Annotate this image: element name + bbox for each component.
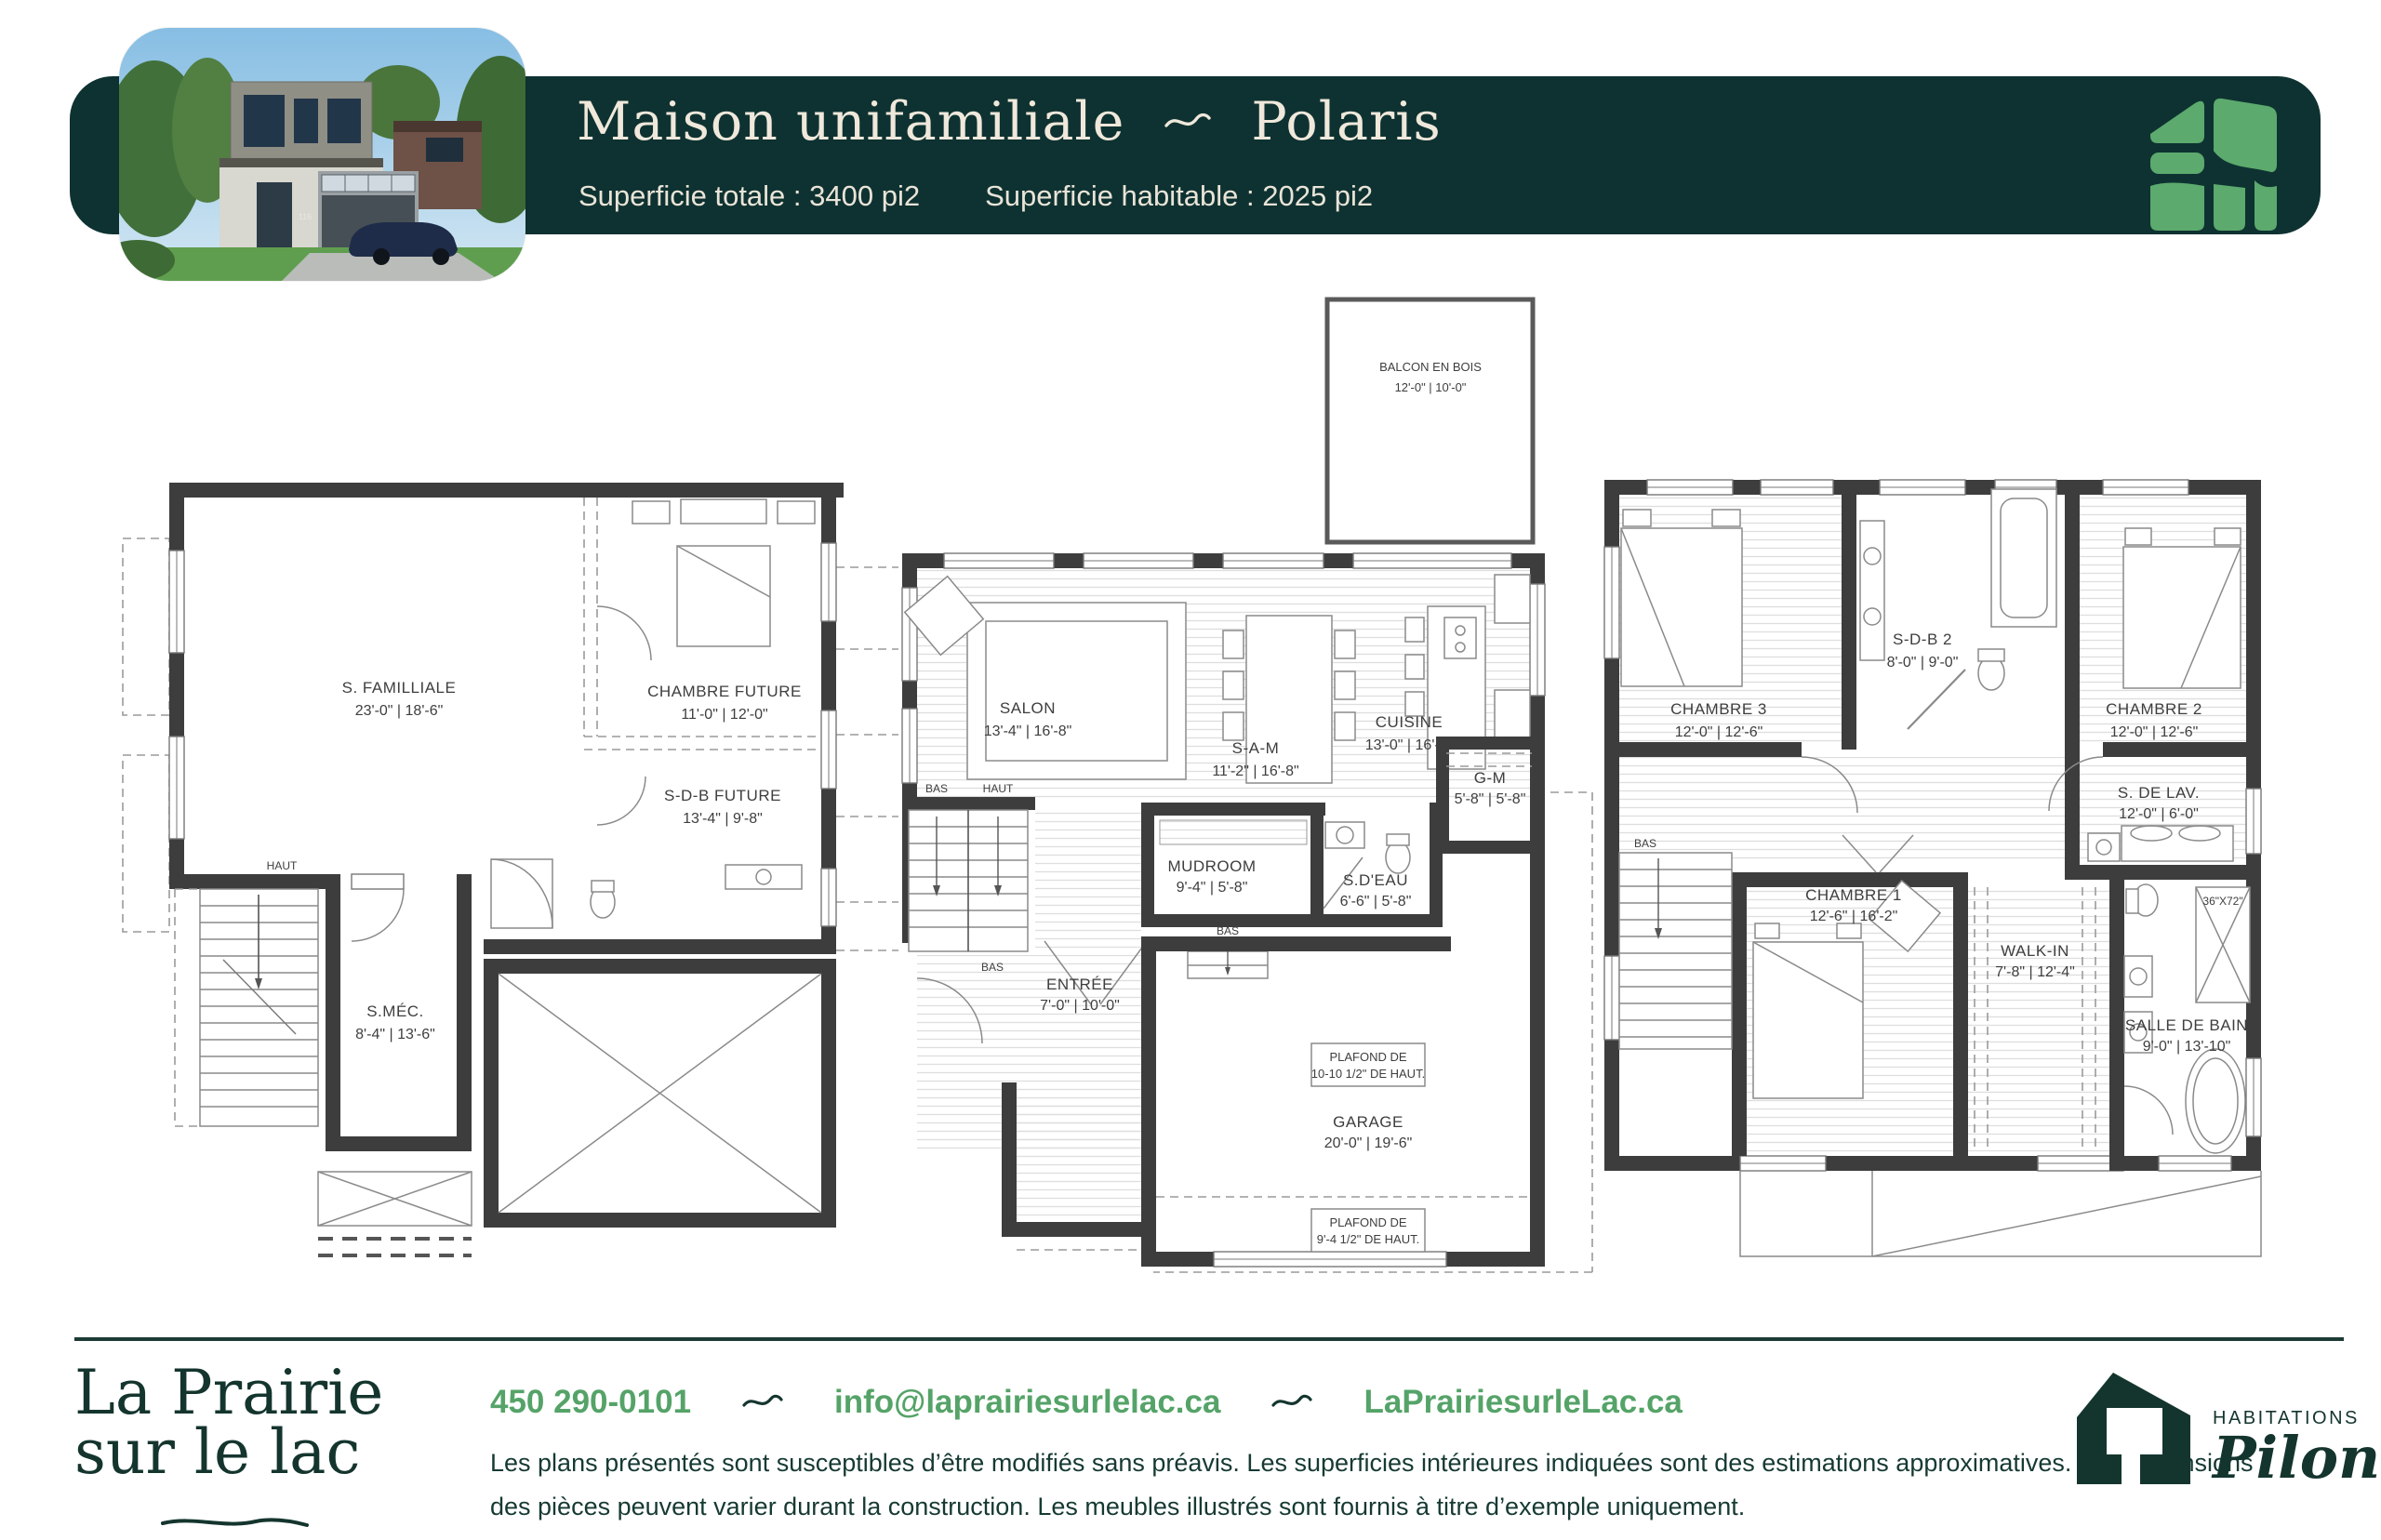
room-label: SALON xyxy=(1000,699,1056,717)
ceiling-note: PLAFOND DE xyxy=(1329,1215,1406,1229)
room-label: CHAMBRE FUTURE xyxy=(647,683,802,700)
room-label: SALLE DE BAIN xyxy=(2125,1016,2248,1034)
stair-label-bas: BAS xyxy=(981,961,1004,974)
room-label: CHAMBRE 3 xyxy=(1670,700,1767,718)
stair-label-haut: HAUT xyxy=(267,859,298,872)
pilon-logo: HABITATIONS Pilon xyxy=(2060,1360,2380,1492)
squiggle-icon xyxy=(1270,1392,1313,1413)
pilon-name: Pilon xyxy=(2213,1424,2380,1492)
title-right: Polaris xyxy=(1251,91,1441,153)
brand-line2: sur le lac xyxy=(74,1423,383,1482)
disclaimer-line1: Les plans présentés sont susceptibles d’… xyxy=(490,1441,2253,1485)
room-dims: 8'-4" | 13'-6" xyxy=(355,1027,435,1042)
plan-basement: S. FAMILLIALE 23'-0" | 18'-6" CHAMBRE FU… xyxy=(119,458,939,1268)
squiggle-icon xyxy=(741,1392,784,1413)
hall-floor xyxy=(1619,757,2065,865)
plan-main-floor: BALCON EN BOIS 12'-0" | 10'-0" xyxy=(888,290,1609,1281)
squiggle-icon xyxy=(1164,110,1212,134)
superficie-habitable: Superficie habitable : 2025 pi2 xyxy=(985,179,1373,213)
room-dims: 9'-0" | 13'-10" xyxy=(2143,1039,2231,1055)
pilon-house-icon xyxy=(2060,1360,2200,1492)
room-dims: 7'-0" | 10'-0" xyxy=(1040,998,1120,1014)
brand-swash-icon xyxy=(74,1514,326,1533)
room-dims: 12'-0" | 6'-0" xyxy=(2119,806,2199,822)
room-dims: 13'-4" | 16'-8" xyxy=(984,724,1072,739)
house-photo-illustration: 116 xyxy=(119,28,525,281)
room-dims: 5'-8" | 5'-8" xyxy=(1455,791,1526,807)
room-dims: 13'-4" | 9'-8" xyxy=(683,811,763,827)
room-dims: 11'-0" | 12'-0" xyxy=(681,707,767,723)
disclaimer: Les plans présentés sont susceptibles d’… xyxy=(490,1441,2253,1529)
svg-text:12'-0" | 10'-0": 12'-0" | 10'-0" xyxy=(1395,380,1467,394)
room-dims: 12'-0" | 12'-6" xyxy=(2110,724,2199,740)
superficie-totale: Superficie totale : 3400 pi2 xyxy=(579,179,920,213)
plan-upper-floor: CHAMBRE 3 12'-0" | 12'-6" S-D-B 2 8'-0" … xyxy=(1601,435,2354,1268)
brand-line1: La Prairie xyxy=(74,1363,383,1423)
map-logo-icon xyxy=(2141,87,2292,234)
house-photo: 116 xyxy=(119,28,525,281)
subtitle: Superficie totale : 3400 pi2 Superficie … xyxy=(579,179,1373,213)
disclaimer-line2: des pièces peuvent varier durant la cons… xyxy=(490,1485,2253,1529)
contact-row: 450 290-0101 info@laprairiesurlelac.ca L… xyxy=(490,1384,1683,1421)
room-dims: 7'-8" | 12'-4" xyxy=(1995,964,2075,980)
room-label: CHAMBRE 2 xyxy=(2106,700,2202,718)
website-link[interactable]: LaPrairiesurleLac.ca xyxy=(1363,1384,1682,1421)
bed-future xyxy=(632,499,815,646)
room-label: S.D'EAU xyxy=(1343,871,1408,889)
footer-divider xyxy=(74,1337,2344,1341)
room-label: GARAGE xyxy=(1333,1113,1403,1131)
room-label: S. DE LAV. xyxy=(2118,784,2200,802)
stair-label-bas: BAS xyxy=(925,782,948,795)
bed-chambre2 xyxy=(2123,528,2241,688)
svg-text:BALCON EN BOIS: BALCON EN BOIS xyxy=(1379,360,1482,374)
mudroom-bench xyxy=(1160,820,1307,844)
ceiling-note: 10-10 1/2" DE HAUT. xyxy=(1311,1067,1425,1081)
room-dims: 23'-0" | 18'-6" xyxy=(355,703,444,719)
title-left: Maison unifamiliale xyxy=(577,91,1124,153)
entry-door xyxy=(257,182,292,253)
room-label: G-M xyxy=(1474,769,1507,787)
room-dims: 6'-6" | 5'-8" xyxy=(1340,894,1412,909)
room-label: S.MÉC. xyxy=(366,1002,424,1020)
stairs-main xyxy=(909,810,1028,951)
room-dims: 20'-0" | 19'-6" xyxy=(1324,1135,1413,1151)
room-dims: 8'-0" | 9'-0" xyxy=(1887,655,1959,670)
ceiling-note: 9'-4 1/2" DE HAUT. xyxy=(1317,1232,1419,1246)
storage-area xyxy=(318,1172,472,1255)
phone-number[interactable]: 450 290-0101 xyxy=(490,1384,691,1421)
flyer-page: 116 Maison unifamiliale Polaris Superfic… xyxy=(0,0,2381,1540)
house-number: 116 xyxy=(299,212,312,221)
page-title: Maison unifamiliale Polaris xyxy=(577,91,1442,153)
stair-label-bas: BAS xyxy=(1634,837,1656,850)
sdb2-fixtures xyxy=(1860,489,2056,729)
room-label: S-D-B 2 xyxy=(1893,631,1952,648)
room-label: CHAMBRE 1 xyxy=(1805,886,1902,904)
email-link[interactable]: info@laprairiesurlelac.ca xyxy=(834,1384,1220,1421)
room-label: ENTRÉE xyxy=(1046,976,1113,993)
room-dims: 13'-0" | 16'-8" xyxy=(1365,737,1454,753)
stair-label-bas: BAS xyxy=(1217,924,1239,937)
stairs-upper xyxy=(1619,853,1732,1049)
bathroom-fixtures xyxy=(491,859,802,928)
ceiling-note: PLAFOND DE xyxy=(1329,1050,1406,1064)
room-label: S-D-B FUTURE xyxy=(664,787,781,804)
shower-size: 36"X72" xyxy=(2202,895,2242,908)
walkin-floor xyxy=(1968,887,2109,1156)
unexcavated-area xyxy=(484,959,836,1228)
bed-chambre3 xyxy=(1621,510,1742,686)
room-label: WALK-IN xyxy=(2001,942,2069,960)
room-dims: 9'-4" | 5'-8" xyxy=(1177,880,1248,896)
roof-band xyxy=(219,158,383,167)
brand-logo: La Prairie sur le lac xyxy=(74,1363,383,1540)
stair-label-haut: HAUT xyxy=(983,782,1014,795)
balcony: BALCON EN BOIS 12'-0" | 10'-0" xyxy=(1327,299,1533,542)
room-label: S-A-M xyxy=(1232,739,1280,757)
room-dims: 11'-2" | 16'-8" xyxy=(1212,763,1298,779)
stairs-basement xyxy=(175,889,318,1126)
roof-outline xyxy=(1740,1171,2261,1256)
room-label: S. FAMILLIALE xyxy=(342,679,457,697)
room-label: CUISINE xyxy=(1376,713,1443,731)
room-label: MUDROOM xyxy=(1167,857,1256,875)
room-dims: 12'-6" | 16'-2" xyxy=(1810,909,1898,924)
room-dims: 12'-0" | 12'-6" xyxy=(1675,724,1763,740)
